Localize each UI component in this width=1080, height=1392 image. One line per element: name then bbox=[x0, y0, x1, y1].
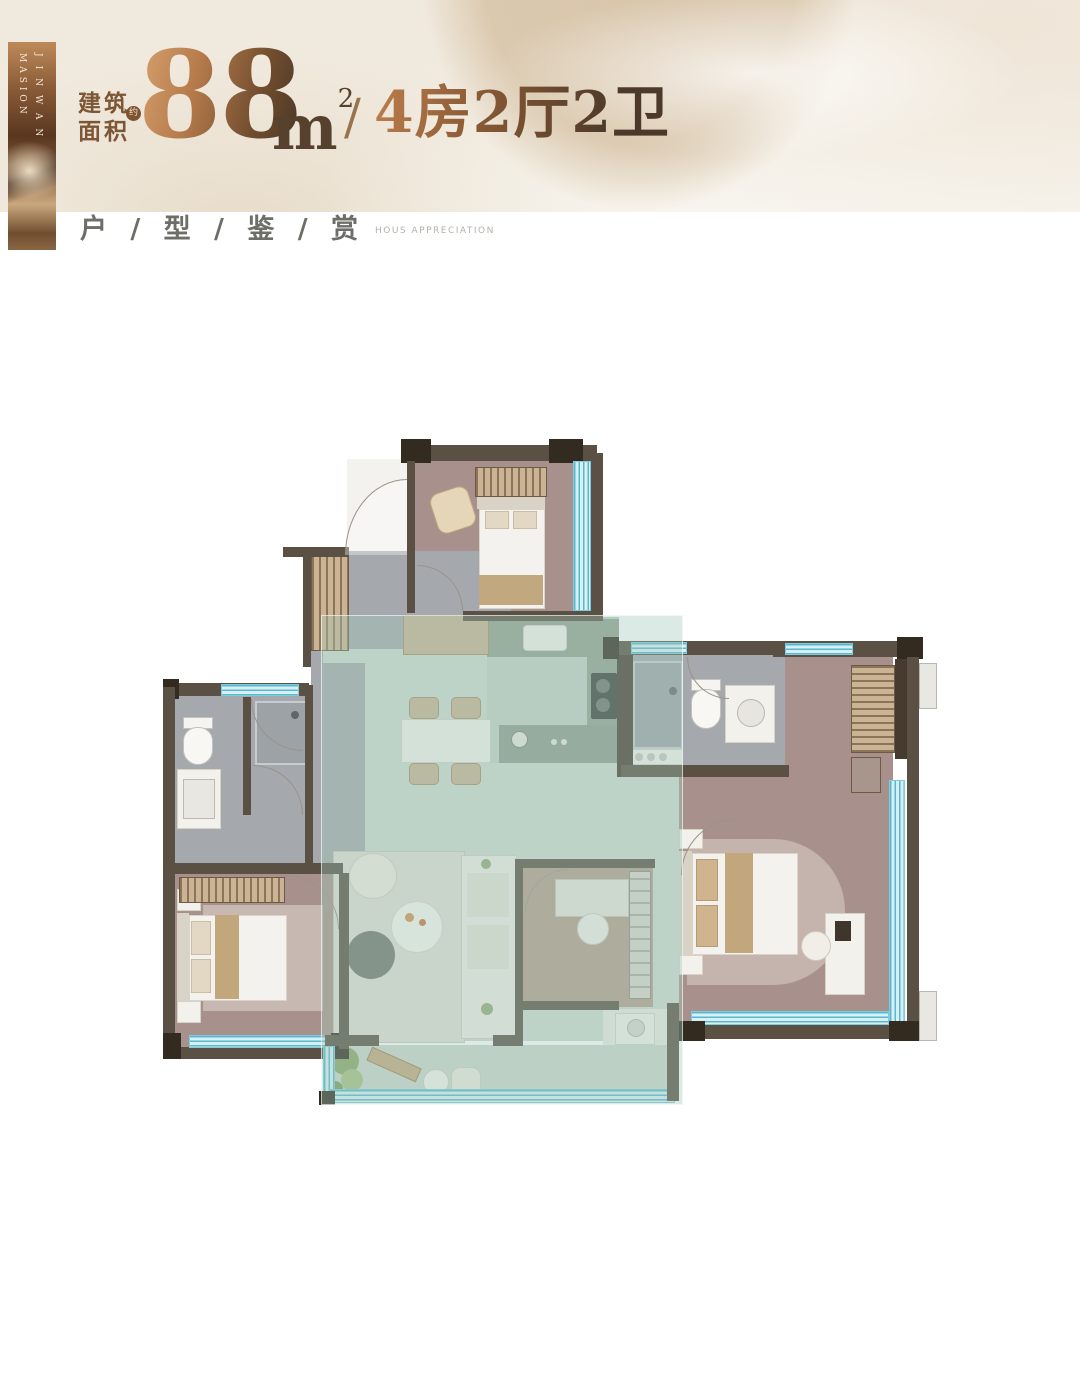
bed-pillow bbox=[513, 511, 537, 529]
bed-pillow bbox=[191, 921, 211, 955]
bed-headboard bbox=[177, 913, 189, 1001]
wall-pier bbox=[897, 637, 923, 659]
vanity-sink bbox=[183, 779, 215, 819]
floor-plan bbox=[163, 435, 938, 1110]
wall bbox=[675, 1025, 921, 1039]
dressing-mirror bbox=[835, 921, 851, 941]
wall-pier bbox=[401, 439, 431, 463]
flex-zone-overlay bbox=[321, 615, 683, 1105]
wall bbox=[171, 863, 343, 874]
wardrobe-cabinet bbox=[851, 757, 881, 793]
wall-pier bbox=[549, 439, 583, 463]
brand-name-vertical: JINWAN bbox=[33, 53, 43, 145]
wall bbox=[591, 453, 603, 621]
area-label-line1: 建筑 bbox=[78, 90, 130, 118]
area-label: 建筑 面积 bbox=[78, 90, 130, 145]
wall bbox=[407, 461, 415, 613]
bed-pillow bbox=[485, 511, 509, 529]
wardrobe-master bbox=[851, 665, 895, 753]
bed-pillow bbox=[696, 905, 718, 947]
wall-pier bbox=[163, 1033, 181, 1059]
window bbox=[189, 1035, 337, 1048]
window bbox=[221, 684, 299, 696]
unit-m: m bbox=[272, 91, 338, 164]
area-unit: m2 bbox=[272, 86, 354, 159]
window bbox=[785, 643, 853, 655]
bed-runner bbox=[215, 915, 239, 999]
ac-platform bbox=[919, 991, 937, 1041]
brand-subname-vertical: MASION bbox=[17, 53, 27, 118]
wardrobe-left-bedroom bbox=[179, 877, 285, 903]
wall bbox=[243, 697, 251, 815]
area-label-line2: 面积 bbox=[78, 118, 130, 146]
vanity-sink bbox=[737, 699, 765, 727]
wall-pier bbox=[889, 1021, 921, 1041]
bed-pillow bbox=[191, 959, 211, 993]
section-title-cn: 户 / 型 / 鉴 / 赏 bbox=[80, 207, 365, 246]
bed-headboard bbox=[477, 497, 545, 509]
ac-platform bbox=[919, 663, 937, 709]
dressing-chair bbox=[801, 931, 831, 961]
wall bbox=[303, 553, 311, 667]
window bbox=[573, 461, 591, 611]
header-slash: / bbox=[344, 88, 361, 146]
wardrobe-top-bedroom bbox=[475, 467, 547, 497]
section-title-en: HOUS APPRECIATION bbox=[375, 226, 495, 236]
wall bbox=[907, 657, 919, 1039]
layout-text: 4房2厅2卫 bbox=[374, 82, 670, 145]
nightstand bbox=[177, 1001, 201, 1023]
toilet bbox=[183, 727, 213, 765]
bed-blanket bbox=[479, 575, 543, 605]
section-title: 户 / 型 / 鉴 / 赏 HOUS APPRECIATION bbox=[80, 207, 495, 246]
wall bbox=[305, 685, 313, 873]
wall bbox=[283, 547, 349, 557]
brand-banner: JINWAN MASION bbox=[8, 42, 56, 250]
window bbox=[691, 1011, 889, 1025]
window bbox=[889, 780, 905, 1028]
